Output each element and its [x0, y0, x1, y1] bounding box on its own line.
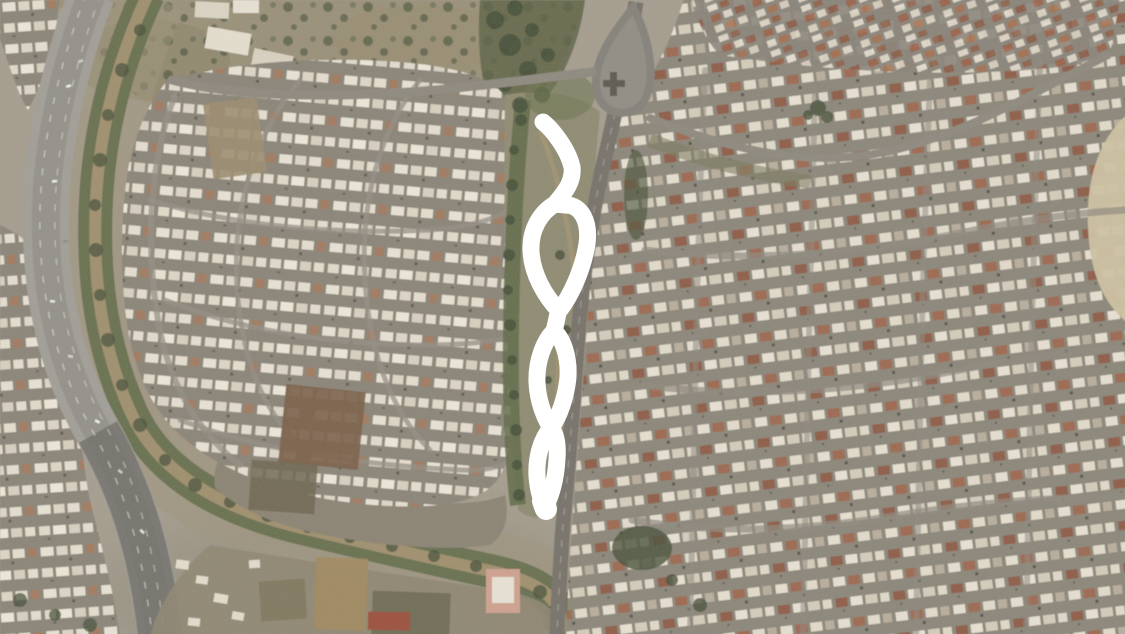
annotation-stroke-end-blob — [543, 501, 546, 509]
satellite-map — [0, 0, 1125, 634]
map-viewport[interactable] — [0, 0, 1125, 634]
